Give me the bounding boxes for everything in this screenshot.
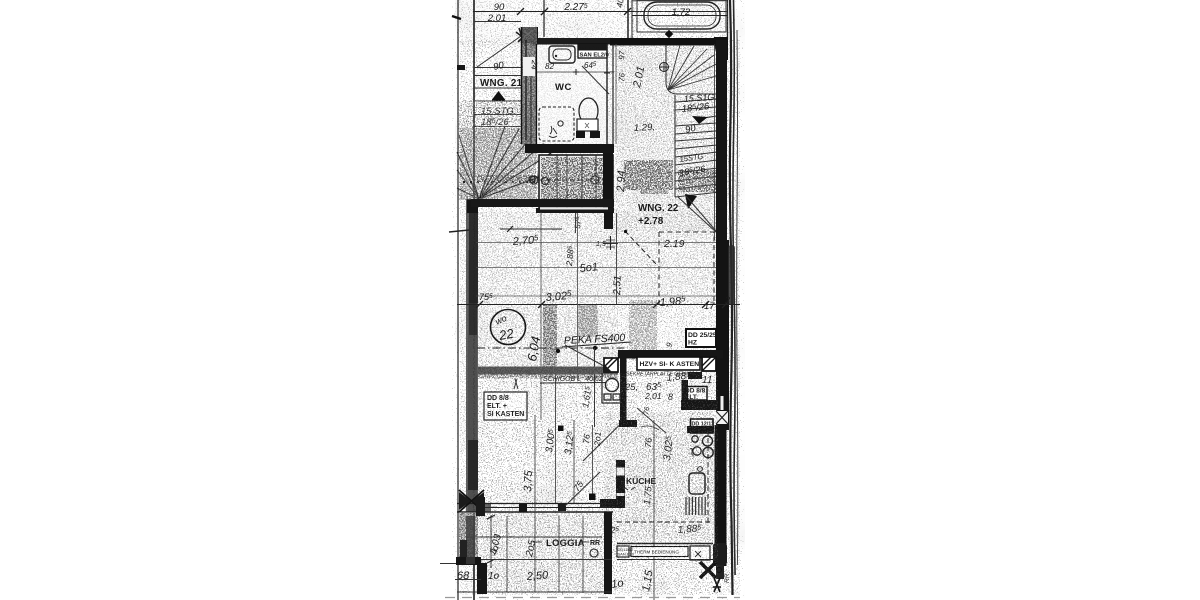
svg-text:82: 82	[545, 62, 554, 71]
svg-text:2.01: 2.01	[487, 13, 507, 24]
svg-text:90: 90	[494, 2, 505, 13]
svg-text:1.29,: 1.29,	[634, 122, 656, 134]
svg-text:SAN EL2/0: SAN EL2/0	[580, 53, 609, 59]
svg-text:2,51: 2,51	[612, 275, 624, 296]
svg-text:5o1: 5o1	[579, 261, 599, 275]
svg-text:HZ: HZ	[688, 340, 697, 347]
svg-text:RR: RR	[590, 540, 600, 547]
svg-text:2.94: 2.94	[615, 170, 628, 193]
svg-text:1o: 1o	[610, 577, 624, 591]
svg-text:+2.78: +2.78	[638, 216, 664, 227]
svg-text:17: 17	[704, 301, 715, 312]
svg-text:1.72: 1.72	[672, 7, 691, 18]
svg-text:68: 68	[457, 570, 470, 582]
svg-text:76: 76	[581, 434, 592, 445]
svg-text:DD 25/25: DD 25/25	[688, 332, 717, 339]
svg-text:RR: RR	[724, 573, 731, 583]
svg-text:3,75: 3,75	[522, 469, 535, 492]
svg-text:WNG. 22: WNG. 22	[638, 203, 679, 214]
svg-text:2.19: 2.19	[663, 238, 685, 250]
svg-text:2: 2	[724, 295, 730, 305]
svg-text:WC: WC	[555, 82, 572, 93]
svg-text:1o: 1o	[488, 571, 500, 582]
svg-text:WNG. 21: WNG. 21	[480, 78, 523, 89]
svg-text:HZV+ SI- K ASTEN: HZV+ SI- K ASTEN	[640, 361, 700, 368]
svg-text:2,50: 2,50	[525, 569, 549, 583]
svg-text:40: 40	[614, 0, 626, 8]
svg-text:DB 64/10: DB 64/10	[580, 46, 599, 51]
svg-text:LOGGIA: LOGGIA	[546, 538, 585, 549]
svg-text:2o1: 2o1	[592, 431, 603, 447]
